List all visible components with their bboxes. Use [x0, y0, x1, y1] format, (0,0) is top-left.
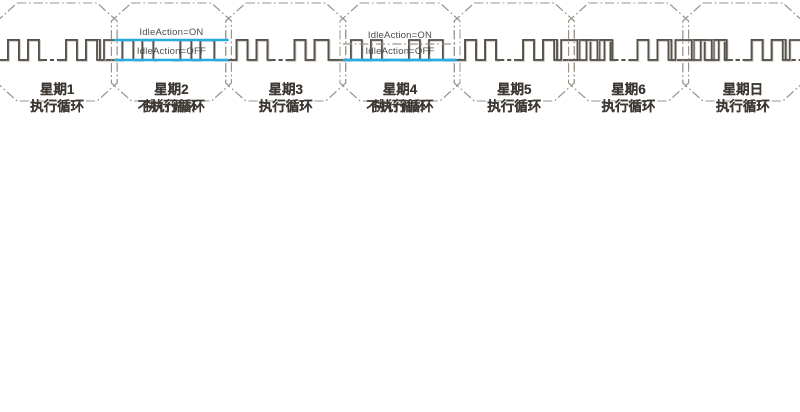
- waveform-shadow: [229, 41, 343, 61]
- cycle-waveform: [0, 40, 114, 60]
- day-cell: 星期1执行循环: [0, 3, 117, 114]
- day-label: 星期4: [383, 82, 418, 97]
- day-label: 星期3: [268, 82, 303, 97]
- day-label: 星期6: [611, 82, 646, 97]
- day-cell: 星期3执行循环: [226, 3, 346, 114]
- cycle-waveform: [571, 40, 685, 60]
- waveform-shadow: [1, 41, 115, 61]
- cycle-waveform: [457, 40, 571, 60]
- day-cell: 星期日执行循环: [683, 3, 800, 114]
- action-label: 执行循环: [487, 98, 541, 114]
- action-label: 不执行循环: [366, 98, 434, 114]
- day-label: 星期2: [154, 82, 189, 97]
- idle-action-label: IdleAction=ON: [368, 30, 432, 41]
- action-label: 执行循环: [602, 98, 656, 114]
- action-label: 执行循环: [30, 98, 84, 114]
- cycle-waveform: [229, 40, 343, 60]
- day-cell: 星期5执行循环: [454, 3, 574, 114]
- day-cell: IdleAction=ON星期2不执行循环: [111, 3, 231, 114]
- day-label: 星期日: [723, 82, 764, 97]
- day-label: 星期1: [40, 82, 75, 97]
- schedule-row-idleaction-on: 星期1执行循环IdleAction=ON星期2不执行循环星期3执行循环IdleA…: [0, 0, 800, 127]
- action-label: 执行循环: [259, 98, 313, 114]
- day-label: 星期5: [497, 82, 532, 97]
- action-label: 执行循环: [716, 98, 770, 114]
- action-label: 不执行循环: [138, 98, 206, 114]
- waveform-shadow: [572, 41, 686, 61]
- cycle-waveform: [686, 40, 800, 60]
- weekly-schedule-diagram: 星期1执行循环星期2执行循环星期3执行循环星期4执行循环星期5执行循环星期6执行…: [0, 0, 800, 412]
- day-cell: IdleAction=ON星期4不执行循环: [340, 3, 460, 114]
- day-cell: 星期6执行循环: [569, 3, 689, 114]
- idle-action-label: IdleAction=ON: [139, 27, 203, 38]
- waveform-shadow: [458, 41, 572, 61]
